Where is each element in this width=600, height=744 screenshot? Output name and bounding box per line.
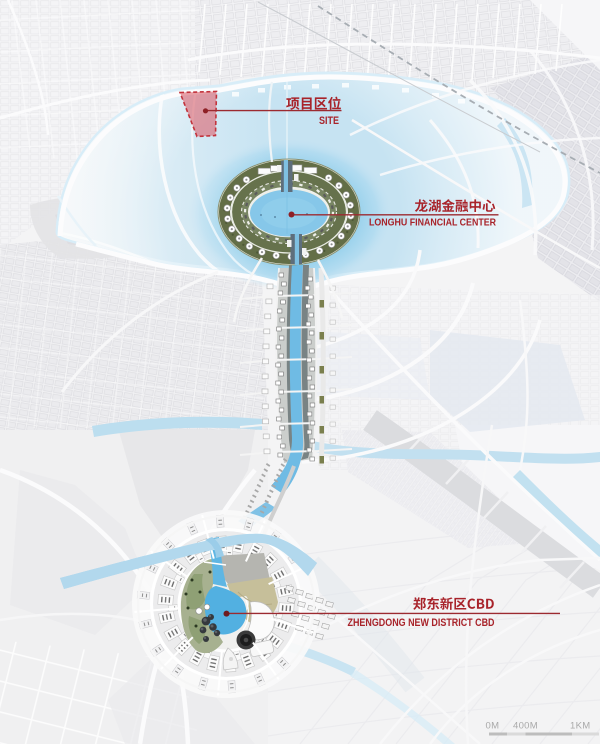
svg-text:LONGHU FINANCIAL CENTER: LONGHU FINANCIAL CENTER xyxy=(369,216,496,228)
svg-text:1KM: 1KM xyxy=(570,721,590,732)
svg-text:0M: 0M xyxy=(486,721,500,732)
svg-text:400M: 400M xyxy=(513,721,538,732)
svg-text:SITE: SITE xyxy=(319,115,339,127)
svg-text:ZHENGDONG NEW DISTRICT CBD: ZHENGDONG NEW DISTRICT CBD xyxy=(348,617,495,629)
